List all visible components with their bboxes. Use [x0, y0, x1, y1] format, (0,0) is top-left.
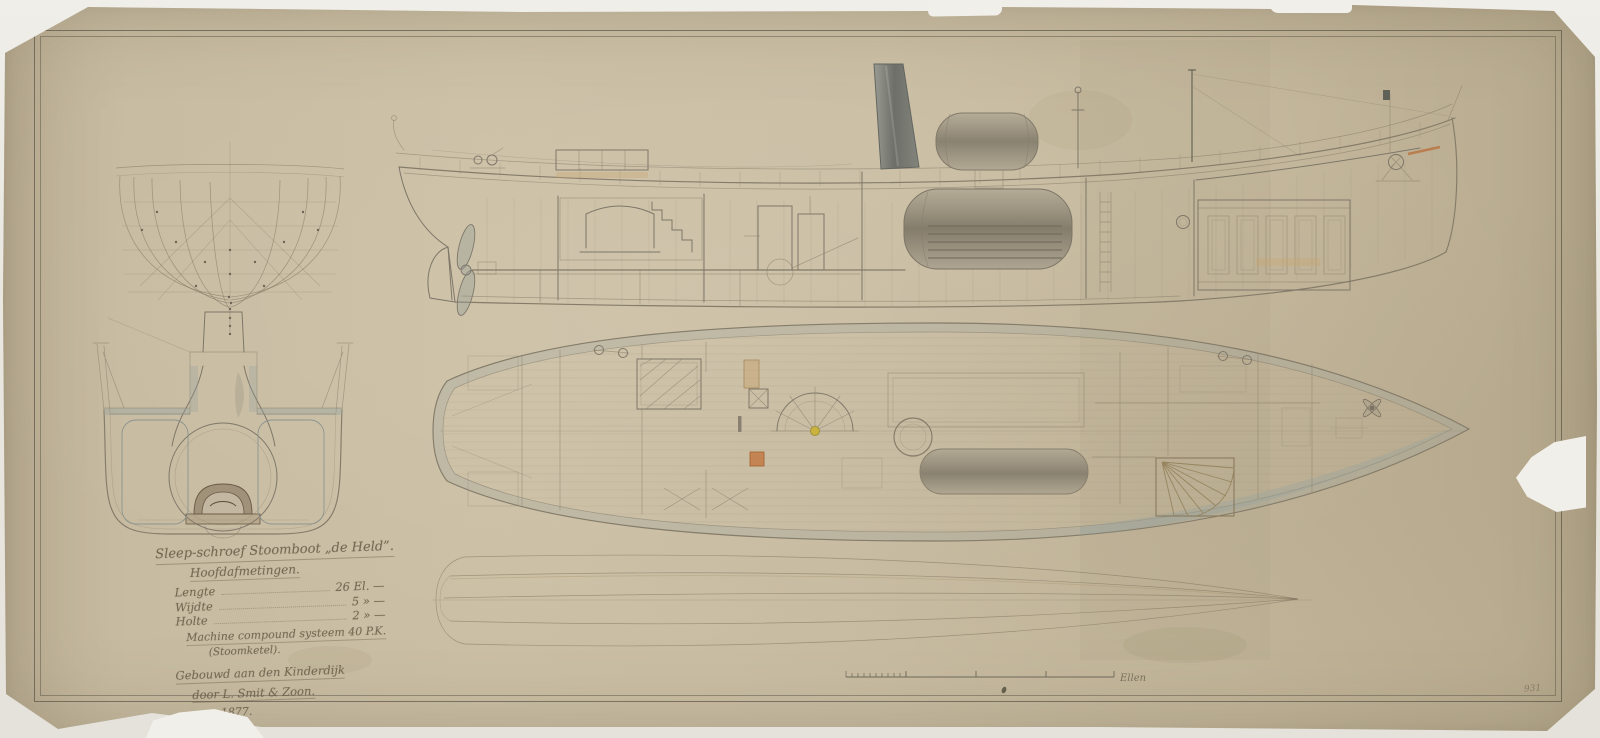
depth-label: Holte [175, 613, 208, 628]
depth-value: 2 » — [352, 607, 386, 623]
dotted-leader [214, 611, 347, 625]
length-label: Lengte [174, 584, 215, 600]
tan-locker [744, 360, 759, 388]
stem [1446, 118, 1457, 252]
drawing-paper: Ellen Sleep-schroef Stoomboot „de Held”.… [0, 0, 1600, 738]
body-plan-view [116, 142, 344, 335]
boiler [904, 189, 1072, 269]
deck-planking [440, 330, 1470, 535]
tape-patch-top-center [928, 0, 1002, 17]
orange-hatch [750, 452, 764, 466]
boiler-section [169, 423, 277, 538]
width-label: Wijdte [175, 599, 213, 615]
scanned-ship-plan: Ellen Sleep-schroef Stoomboot „de Held”.… [0, 0, 1600, 738]
rail-line [396, 104, 1452, 169]
scale-unit-label: Ellen [1119, 673, 1146, 684]
side-elevation-view [392, 64, 1463, 317]
dimensions-heading: Hoofdafmetingen. [190, 562, 300, 582]
stern-davit [393, 120, 404, 150]
steam-dome [936, 113, 1038, 170]
scale-bar: Ellen [846, 671, 1146, 694]
wheel-hub [811, 427, 820, 436]
bow-flagstaff [1383, 86, 1462, 152]
deck-fitting [738, 416, 742, 432]
ink-blot [1001, 686, 1007, 694]
boiler-cross-section-view [93, 312, 353, 538]
tape-patch-top-right [1270, 0, 1352, 13]
title-block: Sleep-schroef Stoomboot „de Held”. Hoofd… [153, 537, 459, 722]
stern-counter [399, 167, 455, 302]
scale-subdivisions [846, 671, 906, 677]
builder-name: door L. Smit & Zoon. [192, 683, 315, 703]
scale-major-ticks [906, 671, 1114, 677]
funnel-section [172, 312, 275, 446]
rudder [428, 247, 455, 302]
deck-plan-view [433, 323, 1470, 541]
dotted-leader [219, 596, 346, 609]
dotted-leader [221, 582, 329, 595]
inventory-number: 931 [1524, 683, 1542, 694]
boiler-plan [920, 449, 1088, 494]
width-value: 5 » — [352, 593, 386, 609]
